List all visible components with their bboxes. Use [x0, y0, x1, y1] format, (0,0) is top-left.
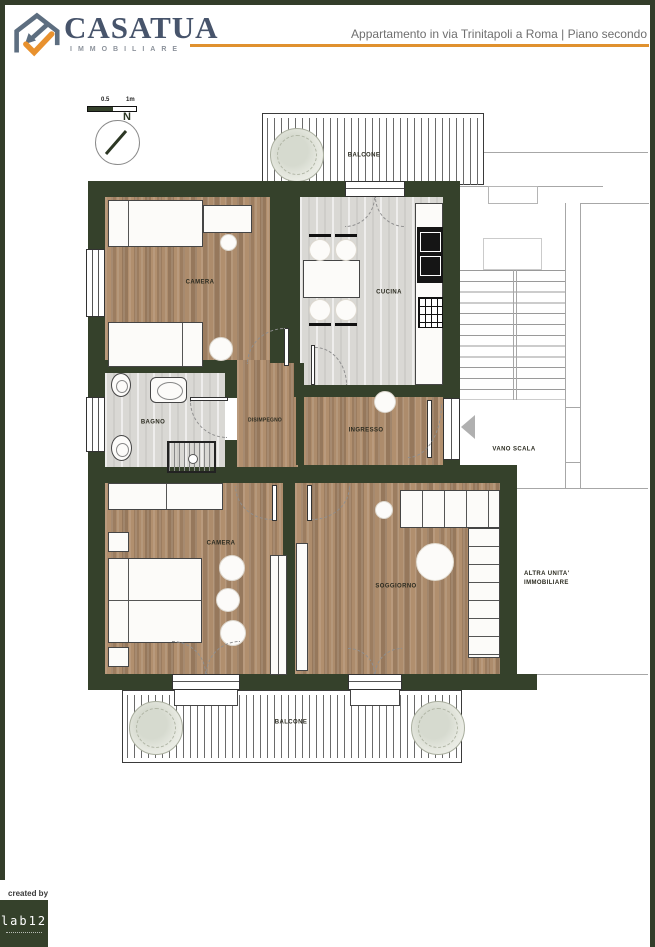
compass-icon: [95, 120, 140, 165]
balcony-door-threshold: [348, 674, 402, 690]
nightstand: [108, 647, 129, 667]
lab12-logo: lab12: [0, 900, 48, 947]
altra-unita-line1: ALTRA UNITA': [524, 570, 569, 579]
room-label-ingresso: INGRESSO: [349, 428, 384, 435]
balcony-door-threshold: [345, 181, 405, 197]
wall-unit: [468, 528, 500, 658]
stool: [220, 234, 237, 251]
room-label-balcone-bottom: BALCONE: [275, 720, 307, 727]
window: [86, 249, 105, 317]
round-table: [209, 337, 233, 361]
compass-north-label: N: [123, 111, 131, 123]
altra-unita-label: ALTRA UNITA' IMMOBILIARE: [524, 570, 569, 588]
page-border-right: [650, 0, 655, 947]
context-line: [580, 203, 581, 488]
chair: [335, 239, 357, 261]
armchair: [216, 588, 240, 612]
desk: [203, 205, 252, 233]
wall: [298, 385, 443, 397]
chair: [309, 299, 331, 321]
context-line: [580, 203, 649, 204]
elevator-shaft: [488, 186, 538, 204]
created-by-label: created by: [8, 889, 48, 898]
side-table: [375, 501, 393, 519]
entrance-arrow-icon: [461, 415, 475, 439]
room-label-camera-bottom: CAMERA: [207, 541, 236, 548]
chair-back: [309, 323, 331, 326]
scale-label-end: 1m: [126, 97, 135, 103]
balcony-step: [174, 690, 238, 706]
brand-house-icon: [8, 10, 64, 58]
kitchen-table: [303, 260, 360, 298]
balcony-step: [350, 690, 400, 706]
bidet: [111, 373, 131, 397]
room-label-balcone-top: BALCONE: [348, 153, 380, 160]
plant-icon: [129, 701, 183, 755]
wall: [298, 465, 517, 483]
lab12-logo-text: lab12: [0, 914, 48, 928]
wardrobe: [270, 555, 287, 675]
entrance-threshold: [443, 398, 460, 460]
window: [86, 397, 105, 452]
door-leaf: [272, 485, 277, 521]
round-rug: [374, 391, 396, 413]
balcony-door-threshold: [172, 674, 240, 690]
toilet: [111, 435, 132, 461]
stair-divider: [516, 270, 517, 400]
context-line: [565, 203, 566, 488]
room-label-camera-top: CAMERA: [186, 280, 215, 287]
chair: [309, 239, 331, 261]
stair-landing: [483, 238, 542, 270]
page-border-left: [0, 0, 5, 880]
chair-back: [335, 323, 357, 326]
header-accent-line: [190, 44, 649, 47]
wall: [294, 363, 304, 397]
sink: [150, 377, 187, 403]
context-line: [565, 462, 580, 463]
shower: [167, 441, 216, 473]
scale-label-mid: 0.5: [101, 97, 109, 103]
cabinet: [296, 543, 308, 671]
chair: [335, 299, 357, 321]
altra-unita-line2: IMMOBILIARE: [524, 579, 569, 588]
context-line: [484, 152, 648, 153]
fridge-oven: [417, 227, 443, 283]
room-label-soggiorno: SOGGIORNO: [375, 584, 416, 591]
round-rug: [416, 543, 454, 581]
double-bed: [108, 558, 202, 643]
page-title: Appartamento in via Trinitapoli a Roma |…: [351, 27, 647, 41]
wall: [296, 397, 304, 465]
room-label-vano-scala: VANO SCALA: [492, 447, 535, 454]
single-bed: [108, 200, 203, 247]
context-line: [517, 488, 648, 489]
wall: [88, 674, 537, 690]
room-label-cucina: CUCINA: [376, 290, 402, 297]
floor-plan-page: CASATUA IMMOBILIARE Appartamento in via …: [0, 0, 655, 947]
chair-back: [335, 234, 357, 237]
chair-back: [309, 234, 331, 237]
sofa: [400, 490, 500, 528]
nightstand: [108, 532, 129, 552]
room-label-bagno: BAGNO: [141, 420, 165, 427]
armchair: [219, 555, 245, 581]
wall: [500, 483, 517, 690]
room-label-disimpegno: DISIMPEGNO: [248, 418, 282, 425]
single-bed: [108, 322, 203, 367]
plant-icon: [270, 128, 324, 182]
brand-name: CASATUA: [64, 10, 219, 46]
page-border-top: [0, 0, 655, 5]
plant-icon: [411, 701, 465, 755]
context-line: [565, 407, 580, 408]
brand-subtitle: IMMOBILIARE: [70, 46, 183, 53]
stair-divider: [513, 270, 514, 400]
stove: [418, 297, 443, 328]
wardrobe: [108, 483, 223, 510]
lab12-logo-subtext: [6, 932, 42, 933]
